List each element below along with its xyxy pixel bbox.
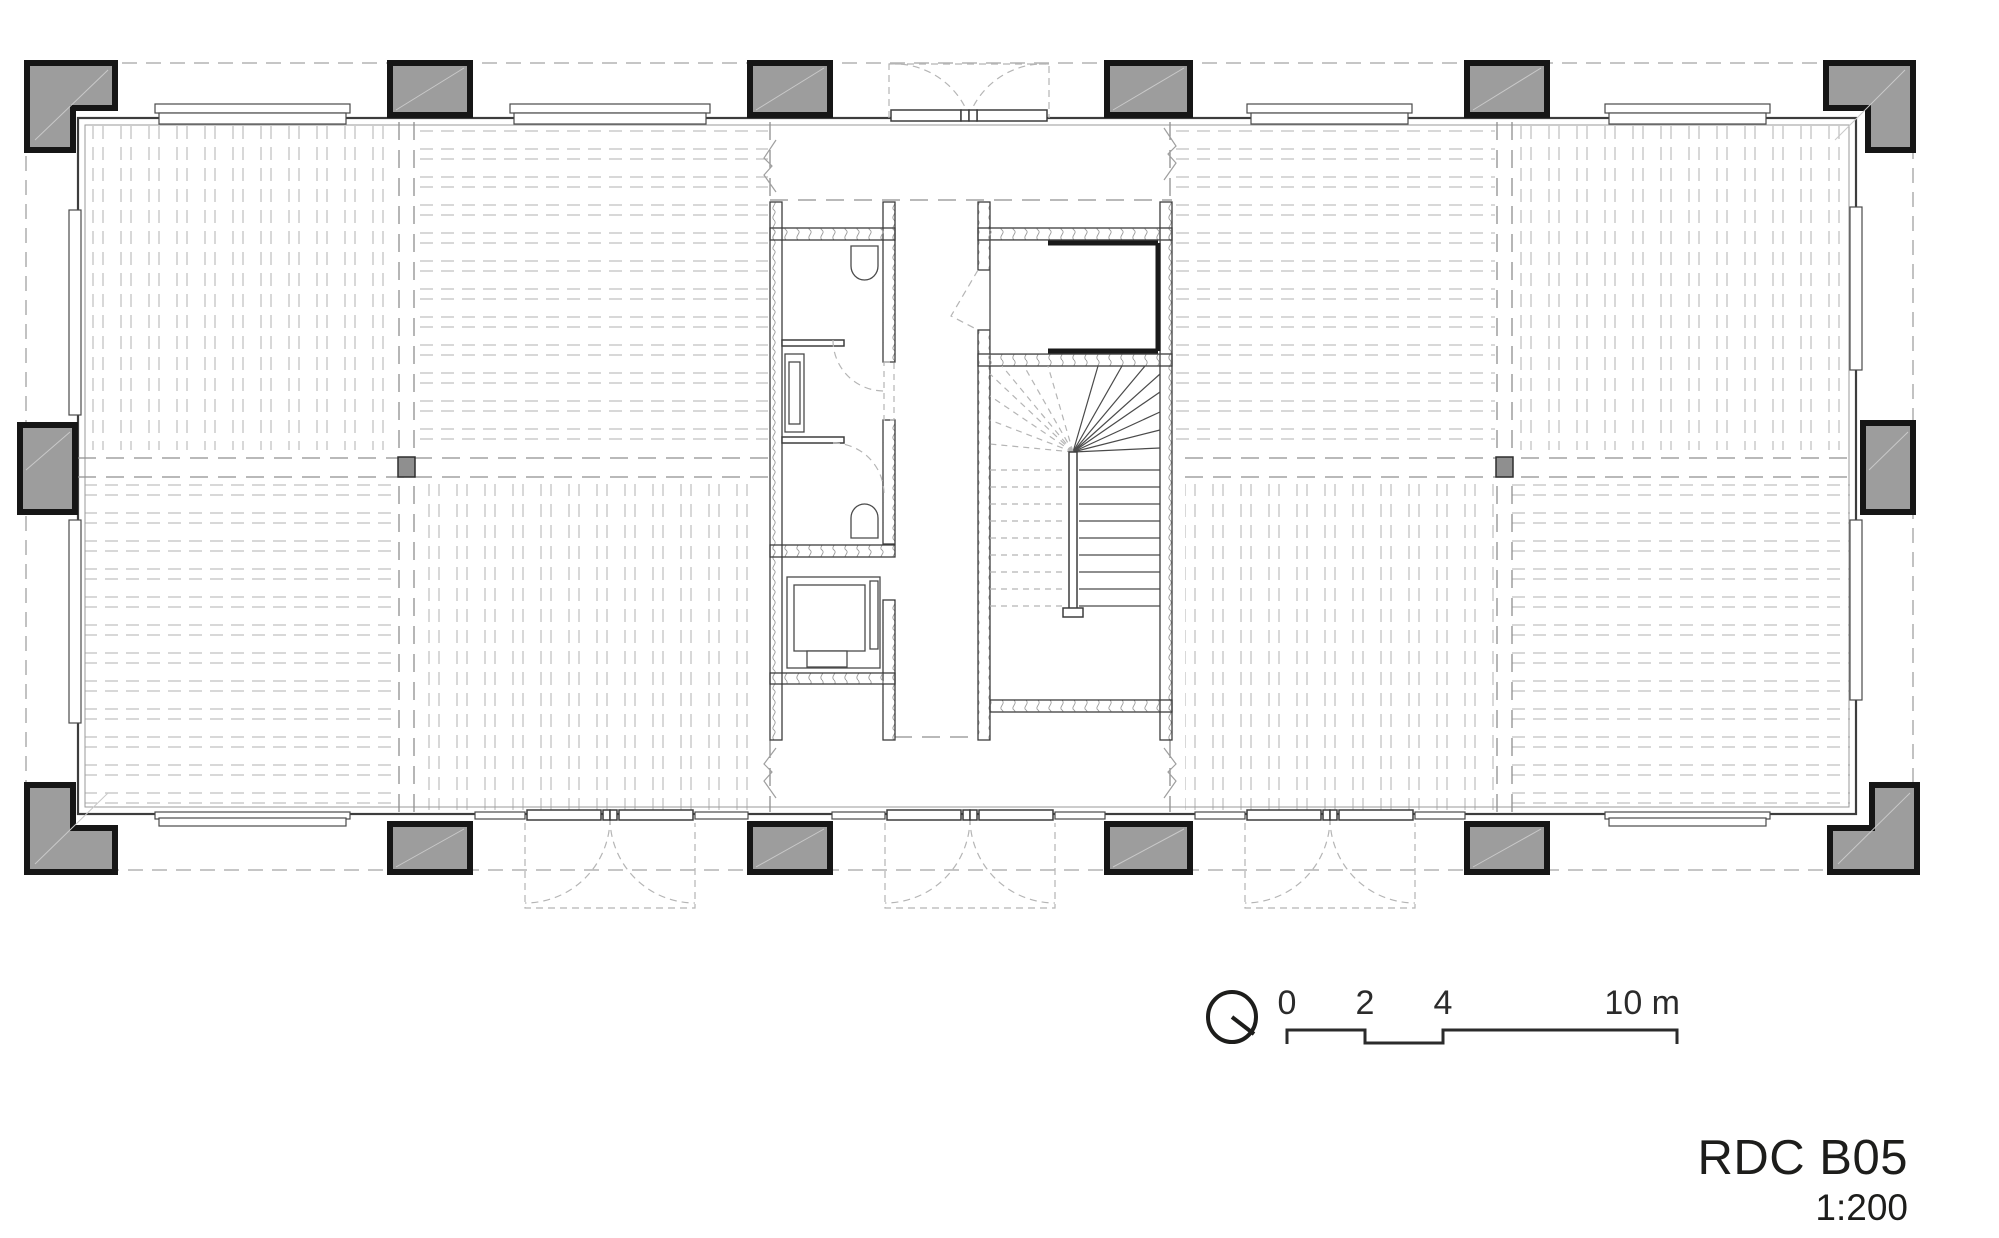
window xyxy=(69,210,81,415)
scale-bar-label: 10 m xyxy=(1604,984,1680,1022)
grid-node-column xyxy=(1496,457,1513,477)
window xyxy=(1195,812,1245,819)
drawing-scale: 1:200 xyxy=(1815,1187,1908,1228)
column xyxy=(1863,423,1913,512)
title-block: RDC B05 1:200 xyxy=(1698,1131,1908,1228)
window xyxy=(832,812,885,819)
window xyxy=(1605,104,1770,113)
scale-bar-label: 4 xyxy=(1434,984,1453,1022)
window xyxy=(695,812,748,819)
stair-core xyxy=(951,202,1172,740)
annotations: 0 2 4 10 m RDC B05 1:200 xyxy=(1208,984,1908,1228)
scale-bar-label: 2 xyxy=(1356,984,1375,1022)
window xyxy=(510,104,710,113)
window xyxy=(1415,812,1465,819)
bathroom-core xyxy=(770,202,895,740)
floor-hatch xyxy=(85,124,1850,810)
drawing-title: RDC B05 xyxy=(1698,1131,1908,1185)
window xyxy=(1850,207,1862,370)
floor-plan-drawing: 0 2 4 10 m RDC B05 1:200 xyxy=(0,0,1999,1238)
window xyxy=(475,812,525,819)
north-indicator xyxy=(1208,992,1256,1042)
stair-handrail xyxy=(1069,452,1077,610)
window xyxy=(1850,520,1862,700)
window xyxy=(1055,812,1105,819)
double-door-south xyxy=(885,810,1055,908)
toilet-fixture xyxy=(851,246,878,280)
scale-bar: 0 2 4 10 m xyxy=(1278,984,1680,1044)
toilet-fixture xyxy=(851,504,878,538)
double-door-south xyxy=(525,810,695,908)
double-door-north xyxy=(889,64,1049,121)
double-door-south xyxy=(1245,810,1415,908)
door-swing xyxy=(951,270,978,330)
window xyxy=(1247,104,1412,113)
grid-node-column xyxy=(398,457,415,477)
window xyxy=(155,104,350,113)
shower-fixture xyxy=(787,577,880,668)
window xyxy=(69,520,81,723)
scale-bar-label: 0 xyxy=(1278,984,1297,1022)
drawing-sheet: 0 2 4 10 m RDC B05 1:200 xyxy=(0,0,1999,1238)
